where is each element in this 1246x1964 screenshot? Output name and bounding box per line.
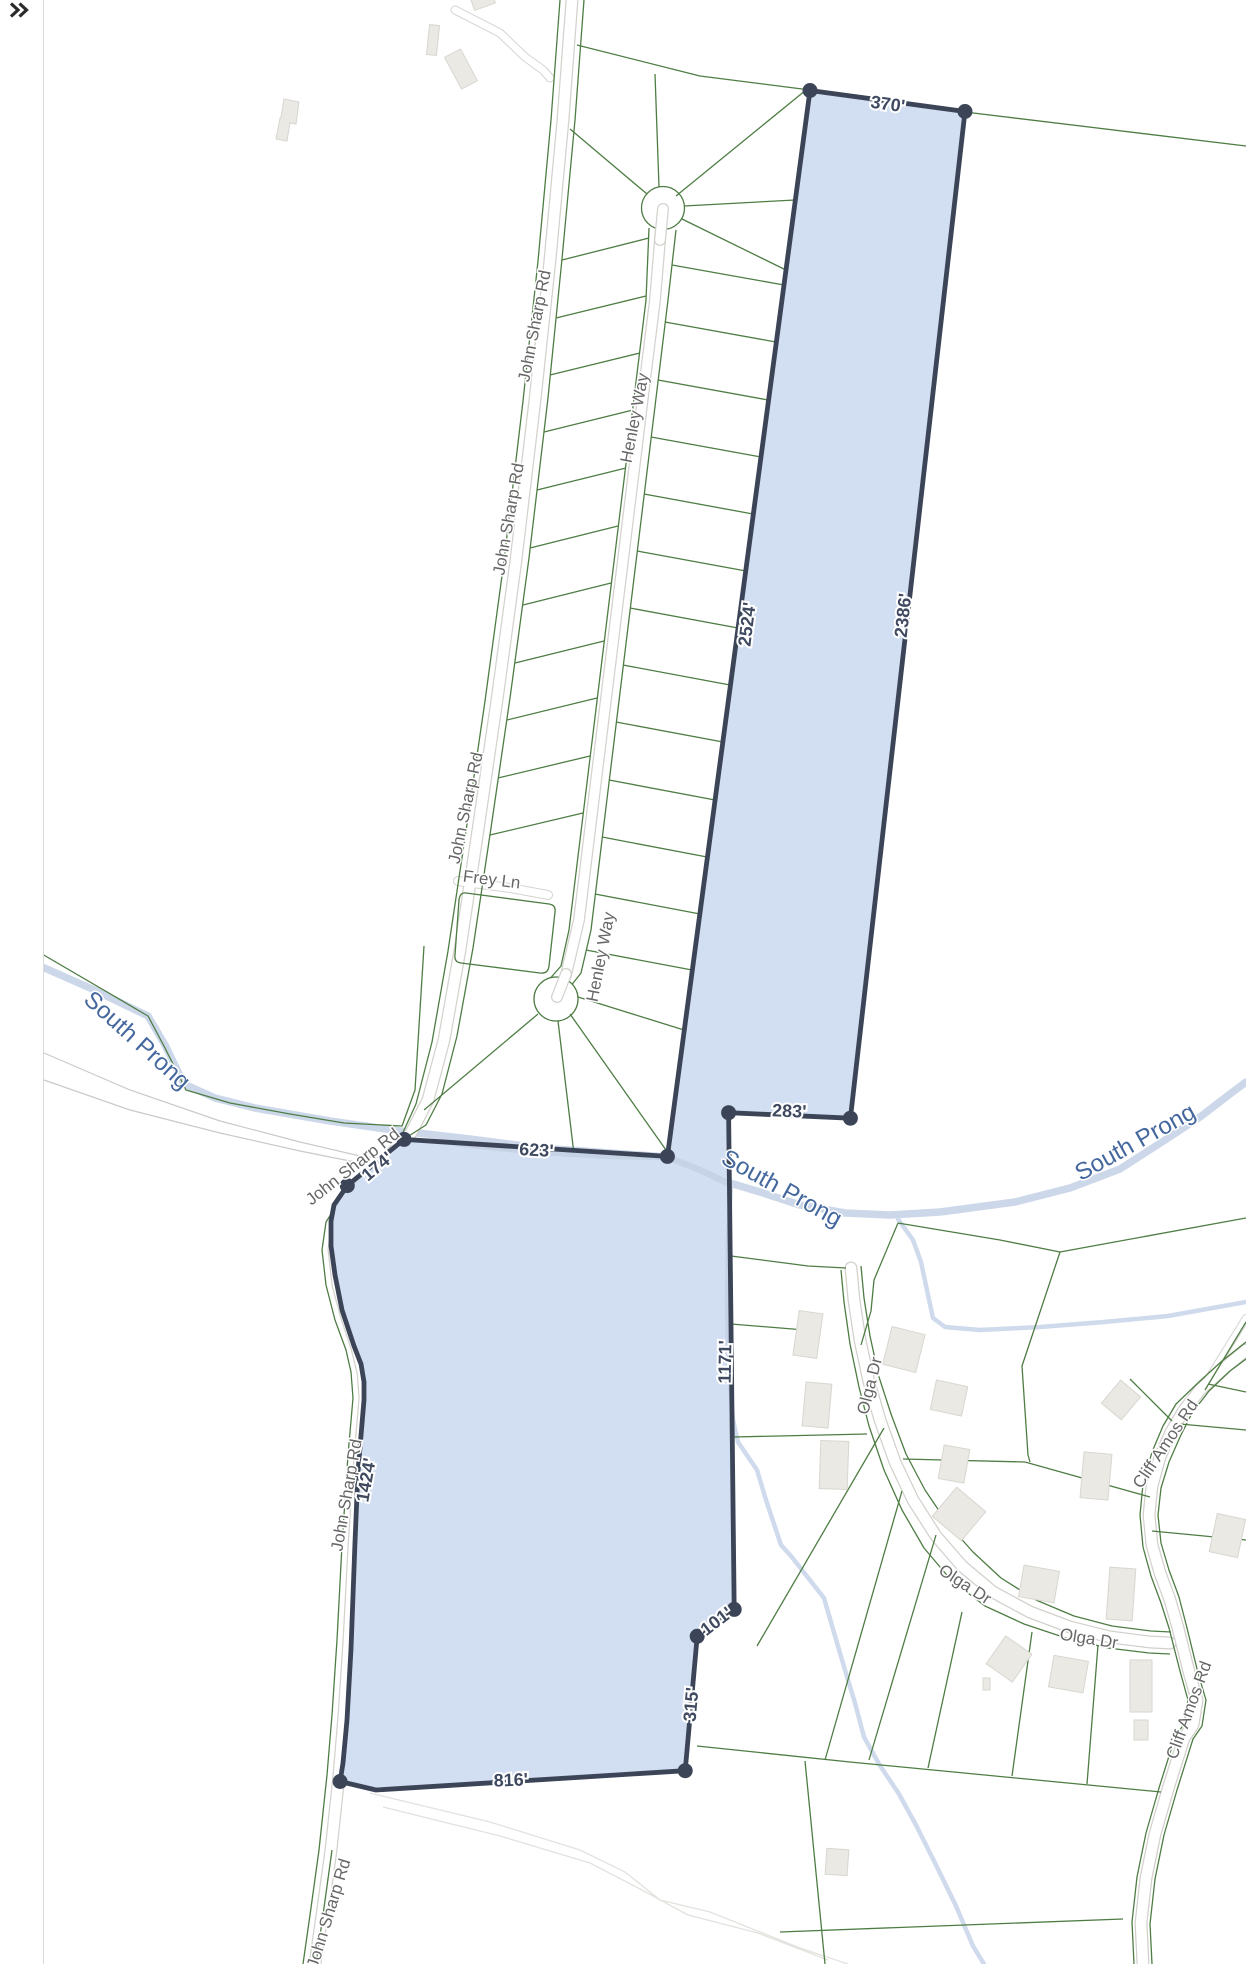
svg-text:816': 816' xyxy=(493,1769,528,1790)
svg-text:283': 283' xyxy=(772,1100,807,1121)
svg-text:623': 623' xyxy=(519,1139,554,1161)
svg-text:315': 315' xyxy=(680,1687,703,1723)
svg-text:1171': 1171' xyxy=(715,1340,736,1384)
